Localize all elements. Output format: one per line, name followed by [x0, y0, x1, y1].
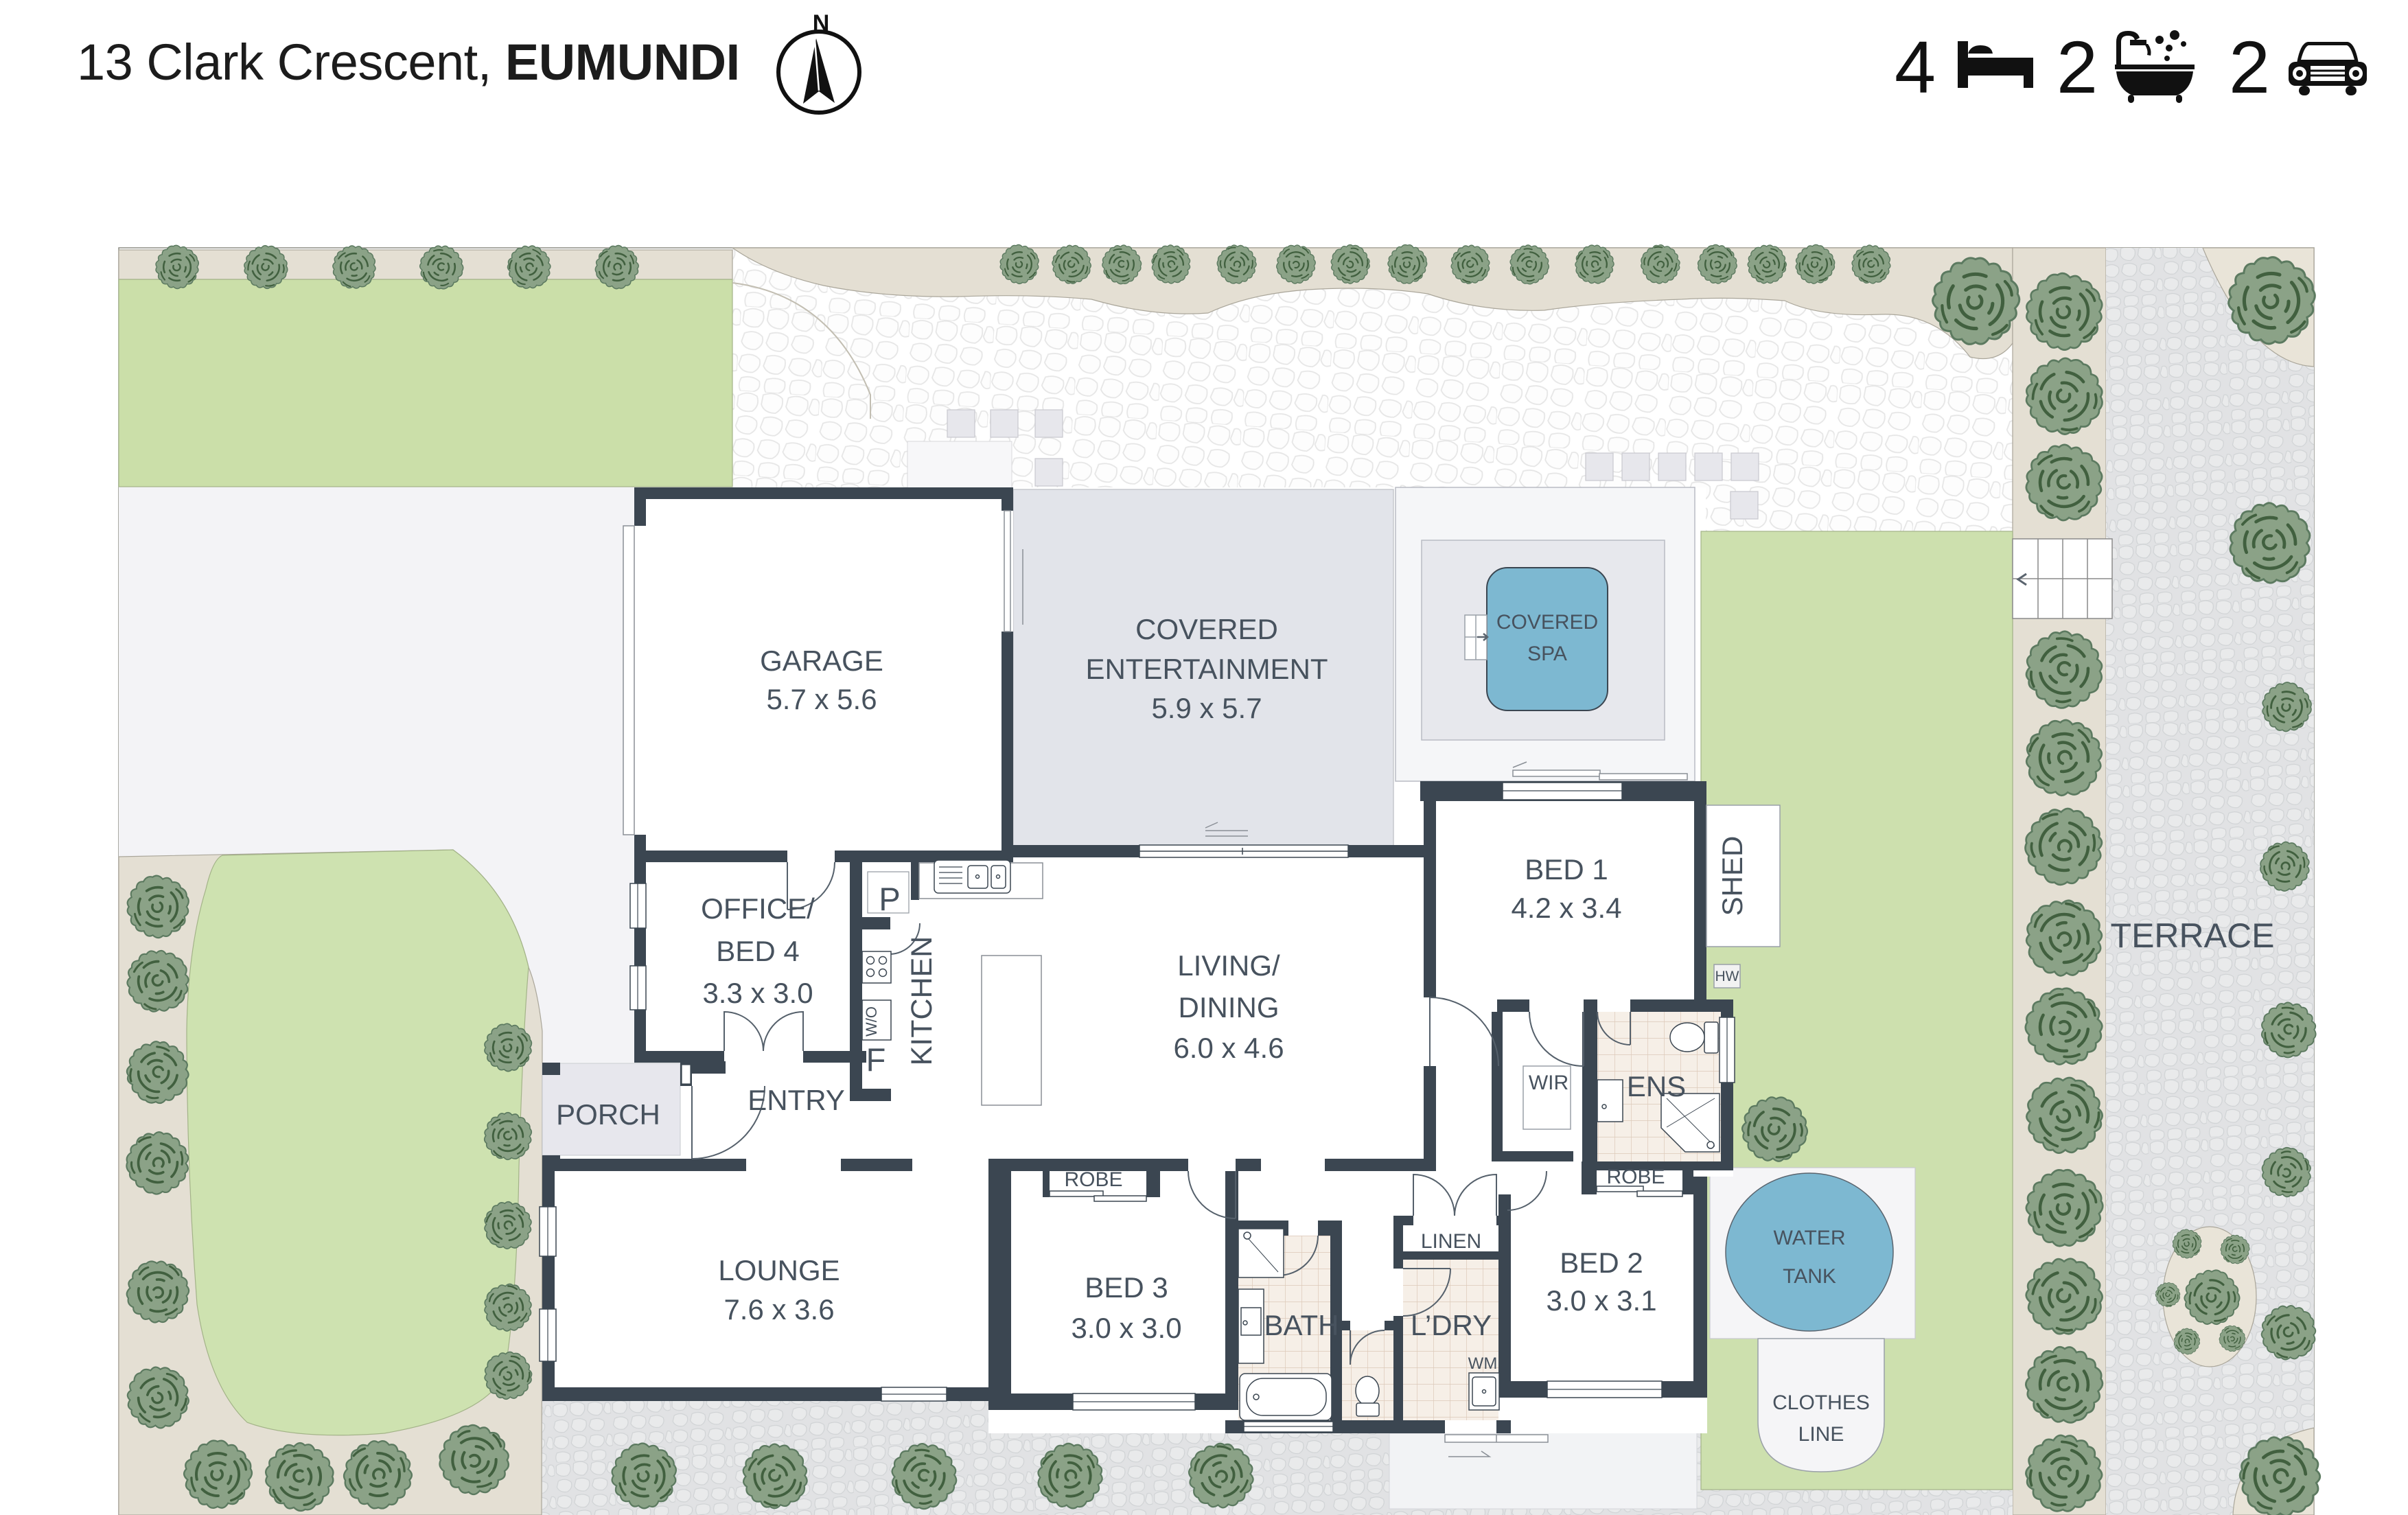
- svg-text:6.0 x 4.6: 6.0 x 4.6: [1173, 1032, 1284, 1064]
- svg-text:ENTRY: ENTRY: [748, 1084, 845, 1116]
- svg-text:3.3 x 3.0: 3.3 x 3.0: [702, 977, 813, 1009]
- svg-text:TANK: TANK: [1783, 1265, 1836, 1288]
- svg-text:WATER: WATER: [1774, 1227, 1846, 1249]
- svg-text:SPA: SPA: [1527, 643, 1567, 665]
- svg-text:GARAGE: GARAGE: [760, 645, 883, 677]
- svg-text:LOUNGE: LOUNGE: [718, 1254, 840, 1286]
- svg-text:CLOTHES: CLOTHES: [1772, 1391, 1870, 1414]
- svg-text:2: 2: [2057, 25, 2098, 108]
- svg-text:F: F: [866, 1041, 886, 1078]
- svg-text:TERRACE: TERRACE: [2111, 916, 2275, 955]
- svg-text:OFFICE/: OFFICE/: [701, 892, 815, 925]
- svg-text:HW: HW: [1715, 969, 1739, 984]
- svg-text:3.0 x 3.1: 3.0 x 3.1: [1546, 1284, 1656, 1317]
- svg-text:BED 3: BED 3: [1085, 1271, 1168, 1304]
- svg-text:3.0 x 3.0: 3.0 x 3.0: [1071, 1312, 1181, 1344]
- svg-text:BED 4: BED 4: [716, 935, 799, 967]
- svg-text:SHED: SHED: [1716, 836, 1748, 916]
- svg-text:13 Clark Crescent, EUMUNDI: 13 Clark Crescent, EUMUNDI: [77, 34, 740, 91]
- svg-text:LINEN: LINEN: [1421, 1230, 1481, 1253]
- svg-text:N: N: [813, 10, 830, 36]
- svg-text:L’DRY: L’DRY: [1411, 1309, 1492, 1341]
- svg-text:7.6 x 3.6: 7.6 x 3.6: [723, 1293, 834, 1326]
- svg-text:ENS: ENS: [1627, 1070, 1686, 1102]
- svg-text:PORCH: PORCH: [556, 1098, 660, 1131]
- svg-text:5.7 x 5.6: 5.7 x 5.6: [766, 683, 877, 715]
- svg-text:P: P: [879, 881, 900, 917]
- svg-text:5.9 x 5.7: 5.9 x 5.7: [1151, 692, 1262, 724]
- svg-text:ENTERTAINMENT: ENTERTAINMENT: [1085, 653, 1328, 685]
- svg-text:4.2 x 3.4: 4.2 x 3.4: [1511, 892, 1621, 924]
- svg-text:DINING: DINING: [1179, 991, 1280, 1024]
- svg-text:W/O: W/O: [863, 1006, 880, 1037]
- svg-text:ROBE: ROBE: [1064, 1168, 1122, 1191]
- svg-text:WM: WM: [1468, 1354, 1498, 1373]
- svg-text:BED 1: BED 1: [1525, 853, 1608, 886]
- svg-text:BED 2: BED 2: [1560, 1247, 1643, 1279]
- svg-text:BATH: BATH: [1264, 1309, 1339, 1341]
- svg-text:4: 4: [1895, 25, 1936, 108]
- svg-text:WIR: WIR: [1529, 1072, 1568, 1094]
- svg-text:COVERED: COVERED: [1496, 611, 1598, 634]
- svg-text:COVERED: COVERED: [1135, 613, 1278, 645]
- svg-text:ROBE: ROBE: [1606, 1166, 1665, 1188]
- svg-text:LIVING/: LIVING/: [1177, 949, 1280, 982]
- svg-text:KITCHEN: KITCHEN: [905, 936, 938, 1066]
- svg-text:LINE: LINE: [1798, 1423, 1844, 1446]
- svg-text:2: 2: [2229, 25, 2270, 108]
